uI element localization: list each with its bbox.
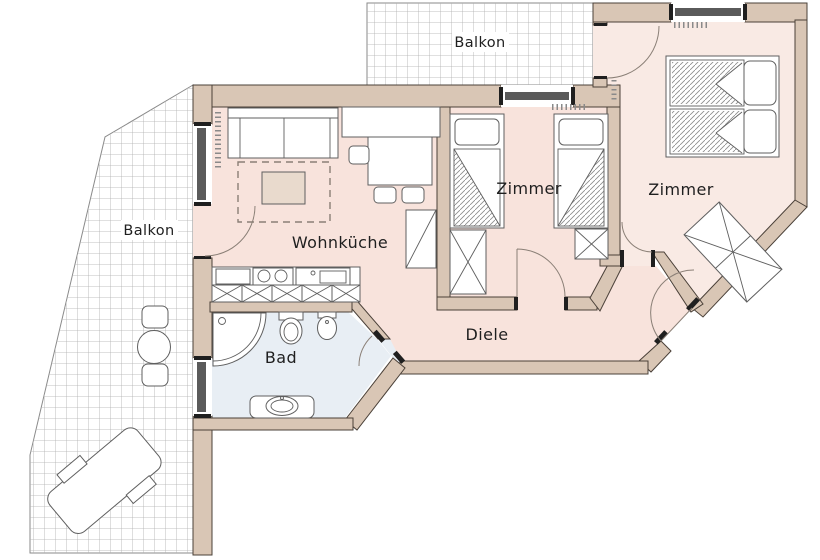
label-wohnkueche: Wohnküche [292, 233, 388, 252]
floor-plan-svg: Balkon Balkon Wohnküche Zimmer Zimmer Di… [0, 0, 820, 560]
kitchen-counter [212, 267, 360, 285]
pillow [559, 119, 603, 145]
chair [402, 187, 424, 203]
tall-cabinet [406, 210, 436, 268]
single-bed-right [554, 114, 608, 228]
pillow [455, 119, 499, 145]
window-zimmer-center [499, 85, 575, 107]
wardrobe-right-small [575, 229, 608, 259]
double-bed [666, 56, 779, 157]
dining-table [368, 137, 432, 185]
bedroom-center-door-opening [517, 297, 565, 310]
label-zimmer-center: Zimmer [496, 179, 561, 198]
window-wohnkueche-left [193, 122, 212, 206]
bedroom-right-door-opening [622, 252, 652, 266]
balcony-door-opening [193, 204, 212, 258]
balcony-seating [138, 306, 171, 386]
wardrobe-left [450, 230, 486, 294]
pillow [744, 110, 776, 153]
chair [349, 146, 369, 164]
balcony-chair [142, 306, 168, 328]
coffee-table [262, 172, 305, 204]
label-bad: Bad [265, 348, 297, 367]
label-zimmer-right: Zimmer [648, 180, 713, 199]
balcony-chair [142, 364, 168, 386]
sideboard [342, 107, 440, 137]
bedroom-right-balcony-door-opening [593, 25, 607, 78]
single-bed-left [450, 114, 504, 228]
label-diele: Diele [466, 325, 509, 344]
bidet-icon [318, 312, 337, 340]
kitchen-base-cabinets [212, 285, 360, 302]
window-bad-left [193, 356, 212, 418]
sofa [228, 108, 338, 158]
pillow [744, 61, 776, 105]
label-balkon-top: Balkon [454, 35, 505, 51]
toilet-icon [279, 312, 303, 344]
window-zimmer-right [669, 3, 747, 22]
washbasin-icon [250, 396, 314, 418]
stove-icon [253, 268, 293, 285]
floor-plan-page: Balkon Balkon Wohnküche Zimmer Zimmer Di… [0, 0, 820, 560]
kitchen-sink-icon [296, 268, 350, 285]
kitchen-appliance [216, 269, 250, 284]
balcony-table [138, 331, 171, 364]
label-balkon-left: Balkon [123, 223, 174, 239]
chair [374, 187, 396, 203]
